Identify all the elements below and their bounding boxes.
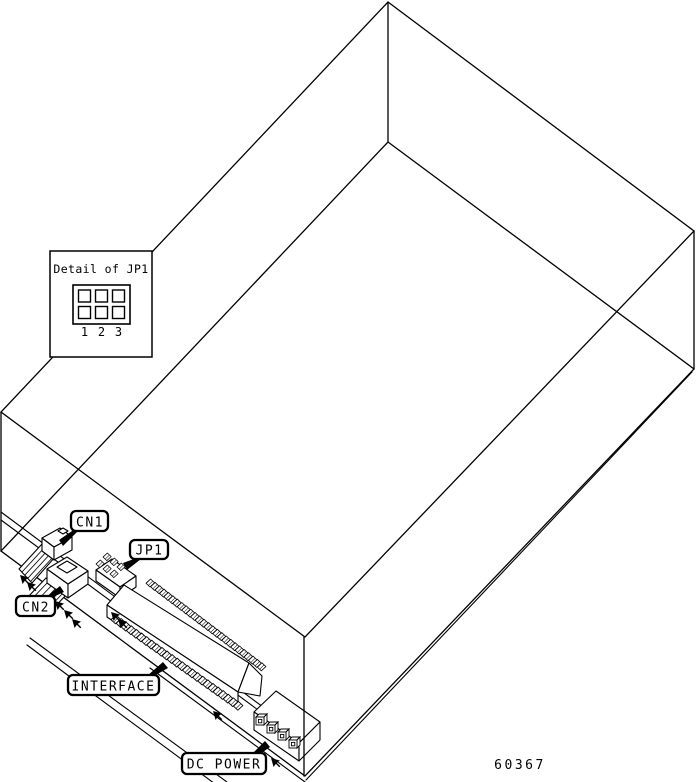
dc-power-callout-label: DC POWER [187, 758, 262, 773]
enclosure-diagram: Detail of JP1 1 2 3 CN1 JP1 CN2 INTERFAC… [0, 0, 696, 782]
jumper-pin-1-label: 1 [81, 325, 88, 339]
jumper-pin-3-label: 3 [115, 325, 122, 339]
inset-title: Detail of JP1 [53, 262, 148, 276]
cn2-callout-label: CN2 [22, 601, 50, 616]
cn1-callout-label: CN1 [76, 516, 104, 531]
background [0, 0, 696, 782]
jumper-pin-2-label: 2 [98, 325, 105, 339]
interface-callout-label: INTERFACE [72, 680, 156, 695]
diagram-page: Detail of JP1 1 2 3 CN1 JP1 CN2 INTERFAC… [0, 0, 696, 782]
jp1-callout-label: JP1 [136, 544, 164, 559]
figure-number: 60367 [494, 758, 546, 773]
jp1-detail-inset: Detail of JP1 1 2 3 [50, 251, 152, 357]
